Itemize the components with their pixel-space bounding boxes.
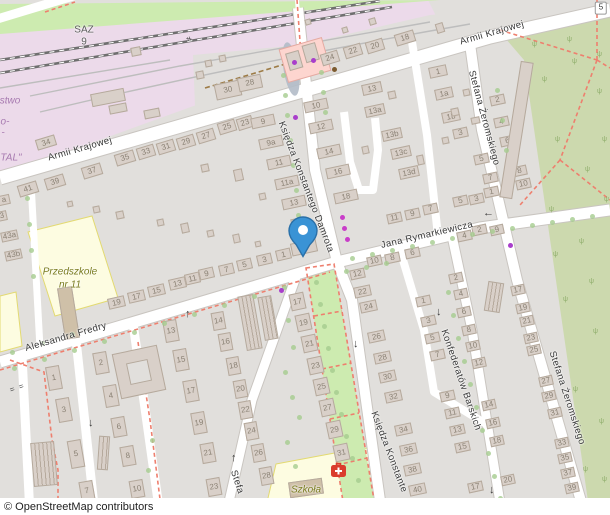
oneway-arrow-icon: ↓ xyxy=(489,485,495,496)
building: 18 xyxy=(225,356,241,376)
tree-icon xyxy=(330,368,335,373)
oneway-arrow-icon: ↑ xyxy=(185,309,191,320)
building xyxy=(387,90,396,99)
tree-icon xyxy=(364,265,369,270)
grass-tuft-icon: ψ xyxy=(553,251,558,258)
tree-icon xyxy=(321,90,326,95)
tree-icon xyxy=(570,217,575,222)
building xyxy=(156,218,164,226)
tree-icon xyxy=(350,456,355,461)
poi-dot-icon xyxy=(342,226,347,231)
grass-tuft-icon: ψ xyxy=(563,296,568,303)
area-label: SAZ xyxy=(74,25,93,36)
poi-dot-icon xyxy=(508,243,513,248)
grass-tuft-icon: ψ xyxy=(579,238,584,245)
tree-icon xyxy=(72,348,77,353)
building: 21 xyxy=(300,333,318,353)
grass-tuft-icon: ψ xyxy=(589,278,594,285)
tree-icon xyxy=(318,302,323,307)
tree-icon xyxy=(42,357,47,362)
tree-icon xyxy=(281,73,286,78)
oneway-arrow-icon: ← xyxy=(483,208,494,219)
tree-icon xyxy=(285,113,290,118)
tree-icon xyxy=(132,330,137,335)
building xyxy=(232,168,243,182)
building xyxy=(441,136,449,144)
building xyxy=(130,46,142,57)
building: 23 xyxy=(206,477,223,497)
grass-tuft-icon: ψ xyxy=(583,466,588,473)
grass-tuft-icon: ψ xyxy=(602,136,607,143)
grass-tuft-icon: ψ xyxy=(597,88,602,95)
tree-icon xyxy=(10,350,15,355)
poi-dot-icon xyxy=(311,58,316,63)
grass-tuft-icon: ψ xyxy=(532,41,537,48)
tree-icon xyxy=(290,395,295,400)
tree-icon xyxy=(495,88,500,93)
area-label: o- xyxy=(1,117,10,128)
tree-icon xyxy=(486,451,491,456)
building xyxy=(195,70,204,79)
tree-icon xyxy=(294,188,299,193)
tree-icon xyxy=(470,232,475,237)
tree-icon xyxy=(252,294,257,299)
building xyxy=(361,145,370,154)
tree-icon xyxy=(283,370,288,375)
tree-icon xyxy=(510,226,515,231)
grass-tuft-icon: ψ xyxy=(567,36,572,43)
tree-icon xyxy=(192,312,197,317)
building xyxy=(450,107,459,116)
building: 31 xyxy=(332,442,350,462)
tree-icon xyxy=(102,339,107,344)
building xyxy=(96,436,109,471)
tree-icon xyxy=(334,390,339,395)
tree-icon xyxy=(356,478,361,483)
building xyxy=(66,200,73,207)
grass-tuft-icon: ψ xyxy=(599,418,604,425)
building: 10 xyxy=(129,479,146,499)
grass-tuft-icon: ψ xyxy=(542,76,547,83)
tree-icon xyxy=(286,318,291,323)
tree-icon xyxy=(314,280,319,285)
building xyxy=(115,210,124,219)
building: 26 xyxy=(250,443,266,463)
building xyxy=(254,240,261,247)
oneway-arrow-icon: ↓ xyxy=(353,339,359,350)
tree-icon xyxy=(490,229,495,234)
area-label: 5 xyxy=(595,2,607,15)
oneway-arrow-icon: ↓ xyxy=(88,418,94,429)
tree-icon xyxy=(456,336,461,341)
poi-dot-icon xyxy=(292,60,297,65)
tree-icon xyxy=(150,438,155,443)
tree-icon xyxy=(344,434,349,439)
attribution-text[interactable]: © OpenStreetMap contributors xyxy=(4,501,153,513)
building: 20 xyxy=(232,379,248,399)
building xyxy=(232,233,241,243)
area-label: stwo xyxy=(0,96,20,107)
area-label: nr 11 xyxy=(59,280,81,291)
oneway-arrow-icon: ↓ xyxy=(436,307,442,318)
building: 27 xyxy=(318,397,336,417)
tree-icon xyxy=(326,346,331,351)
building xyxy=(30,441,58,487)
tree-icon xyxy=(31,274,36,279)
location-marker-pin[interactable] xyxy=(288,216,318,258)
tree-icon xyxy=(222,303,227,308)
grass-tuft-icon: ψ xyxy=(572,58,577,65)
building xyxy=(258,192,266,200)
grass-tuft-icon: ψ xyxy=(585,166,590,173)
tree-icon xyxy=(430,240,435,245)
tree-icon xyxy=(504,148,509,153)
building xyxy=(368,17,377,26)
tree-icon xyxy=(12,366,17,371)
grass-tuft-icon: ψ xyxy=(549,206,554,213)
building xyxy=(218,54,226,62)
area-label: TAL" xyxy=(0,153,21,164)
oneway-arrow-icon: ↑ xyxy=(231,453,237,464)
area-label: 9 xyxy=(81,37,87,48)
building: 14 xyxy=(210,311,226,331)
map-viewport[interactable]: 413937353331292725233499a1111a1315101214… xyxy=(0,0,610,515)
building: 22 xyxy=(237,400,253,420)
tree-icon xyxy=(500,118,505,123)
building: 24 xyxy=(243,421,259,441)
tree-icon xyxy=(146,468,151,473)
tree-icon xyxy=(350,256,355,261)
tree-icon xyxy=(291,345,296,350)
building: 23 xyxy=(306,355,324,375)
tree-icon xyxy=(29,248,34,253)
attribution-bar: © OpenStreetMap contributors xyxy=(0,498,610,515)
tree-icon xyxy=(339,412,344,417)
tree-icon xyxy=(319,70,324,75)
building xyxy=(112,345,167,400)
tree-icon xyxy=(530,223,535,228)
tree-icon xyxy=(322,324,327,329)
building xyxy=(200,163,209,172)
poi-dot-icon xyxy=(293,115,298,120)
poi-dot-icon xyxy=(345,237,350,242)
area-label: Szkoła xyxy=(291,485,321,496)
tree-icon xyxy=(370,252,375,257)
tree-icon xyxy=(283,93,288,98)
building xyxy=(204,59,212,67)
poi-dot-icon xyxy=(279,288,284,293)
building xyxy=(92,205,100,213)
building: 25 xyxy=(312,376,330,396)
tree-icon xyxy=(492,474,497,479)
building: 19 xyxy=(294,312,312,332)
building xyxy=(462,88,470,96)
building: 16 xyxy=(217,332,233,352)
area-label: - xyxy=(1,128,4,139)
grass-tuft-icon: ψ xyxy=(593,328,598,335)
tree-icon xyxy=(293,464,298,469)
building: 29 xyxy=(325,419,343,439)
tree-icon xyxy=(550,220,555,225)
tree-icon xyxy=(27,222,32,227)
tree-icon xyxy=(285,440,290,445)
grass-tuft-icon: ψ xyxy=(604,196,609,203)
poi-dot-icon xyxy=(340,215,345,220)
tree-icon xyxy=(446,290,451,295)
tree-icon xyxy=(451,313,456,318)
area-label: Przedszkole xyxy=(43,267,97,278)
tree-icon xyxy=(162,321,167,326)
building xyxy=(206,229,214,237)
grass-tuft-icon: ψ xyxy=(555,136,560,143)
hospital-icon xyxy=(330,462,347,478)
poi-dot-icon xyxy=(332,67,337,72)
tree-icon xyxy=(323,110,328,115)
tree-icon xyxy=(344,269,349,274)
grass-tuft-icon: ψ xyxy=(602,476,607,483)
grass-tuft-icon: ψ xyxy=(573,386,578,393)
tree-icon xyxy=(590,214,595,219)
tree-icon xyxy=(450,236,455,241)
tree-icon xyxy=(384,261,389,266)
grass-tuft-icon: ψ xyxy=(597,51,602,58)
tree-icon xyxy=(25,196,30,201)
building xyxy=(416,154,425,165)
building: 28 xyxy=(258,466,274,486)
tree-icon xyxy=(297,415,302,420)
building: 17 xyxy=(288,291,306,311)
tree-icon xyxy=(462,359,467,364)
